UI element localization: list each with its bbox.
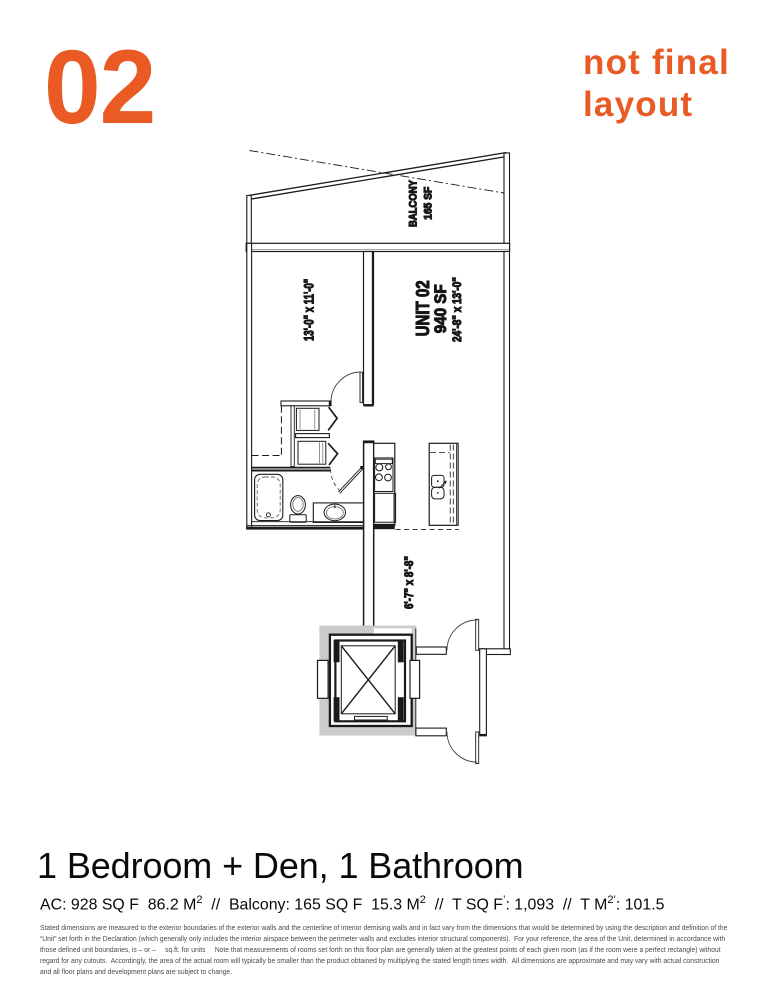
svg-text:24'-8" x 13'-0": 24'-8" x 13'-0" (451, 277, 464, 342)
svg-text:6'-7" x 8'-8": 6'-7" x 8'-8" (402, 556, 416, 609)
svg-text:165 SF: 165 SF (423, 186, 435, 219)
svg-text:BALCONY: BALCONY (408, 179, 420, 227)
svg-text:UNIT 02: UNIT 02 (412, 280, 433, 336)
svg-text:940 SF: 940 SF (432, 284, 450, 333)
svg-text:13'-0" x 11'-0": 13'-0" x 11'-0" (302, 279, 317, 341)
